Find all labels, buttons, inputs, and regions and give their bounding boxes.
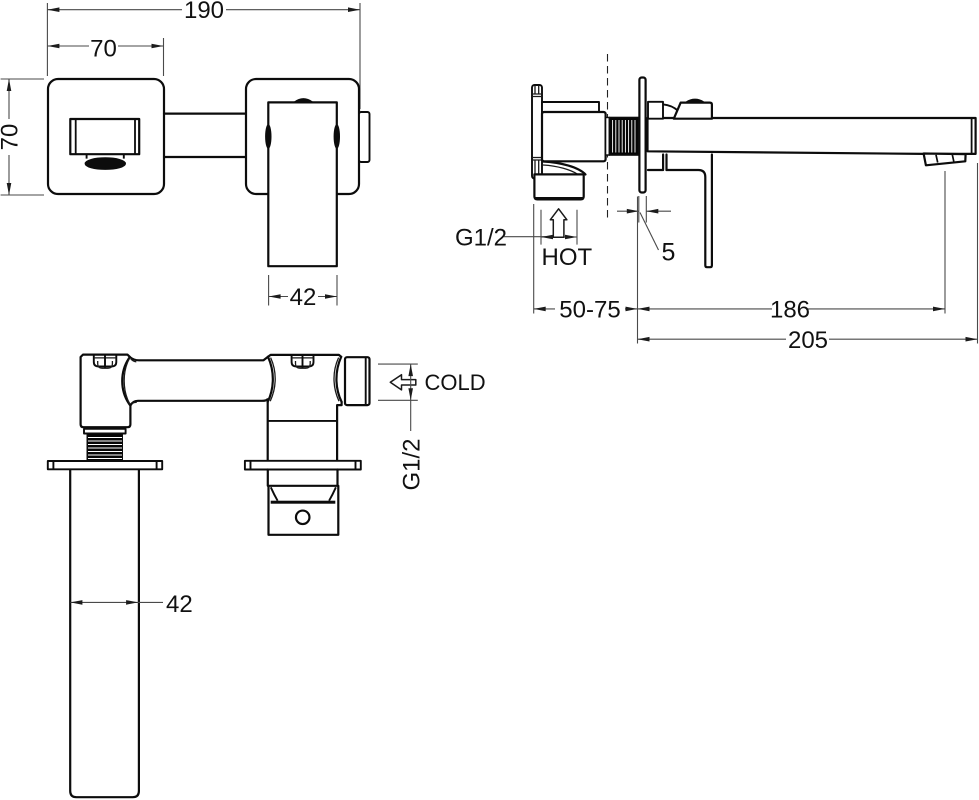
svg-text:205: 205	[788, 327, 828, 354]
svg-text:50-75: 50-75	[559, 297, 620, 324]
svg-text:G1/2: G1/2	[455, 225, 507, 252]
svg-text:5: 5	[662, 239, 676, 267]
svg-text:COLD: COLD	[425, 370, 486, 395]
svg-text:186: 186	[770, 297, 810, 324]
svg-text:42: 42	[290, 284, 317, 311]
svg-text:G1/2: G1/2	[399, 438, 426, 490]
svg-text:70: 70	[90, 36, 117, 63]
svg-text:190: 190	[184, 0, 224, 24]
svg-text:HOT: HOT	[542, 244, 593, 271]
svg-text:42: 42	[166, 591, 193, 618]
svg-text:70: 70	[0, 124, 23, 151]
